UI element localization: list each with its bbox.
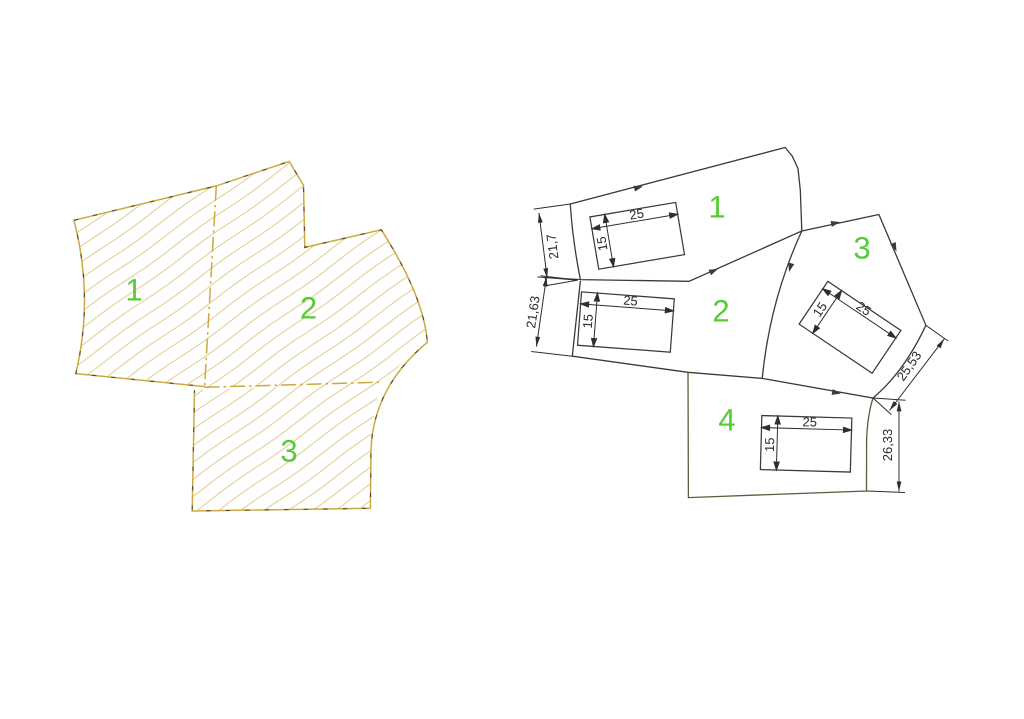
svg-text:4: 4	[718, 403, 735, 438]
svg-text:1: 1	[125, 273, 142, 308]
svg-text:26,33: 26,33	[880, 429, 895, 462]
svg-text:15: 15	[593, 235, 610, 252]
svg-text:25: 25	[802, 414, 817, 429]
svg-text:1: 1	[708, 190, 725, 225]
svg-text:3: 3	[853, 231, 870, 266]
svg-text:2: 2	[300, 291, 317, 326]
svg-text:25: 25	[623, 293, 639, 309]
svg-text:3: 3	[280, 434, 297, 469]
svg-text:2: 2	[712, 294, 729, 329]
svg-text:25: 25	[628, 205, 645, 222]
svg-text:21,7: 21,7	[543, 233, 561, 260]
svg-text:15: 15	[580, 313, 596, 329]
svg-text:15: 15	[762, 437, 777, 452]
